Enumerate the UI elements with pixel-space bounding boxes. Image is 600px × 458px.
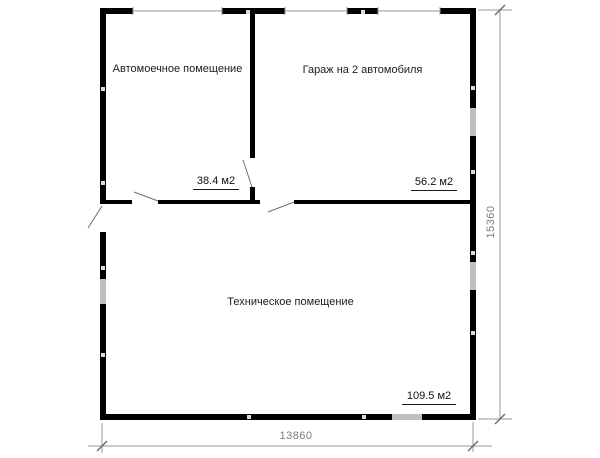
room-label-technical: Техническое помещение bbox=[218, 296, 363, 308]
room-label-carwash: Автомоечное помещение bbox=[105, 63, 250, 75]
area-label-garage: 56.2 м2 bbox=[411, 176, 457, 191]
room-label-garage: Гараж на 2 автомобиля bbox=[290, 64, 435, 76]
door-swing-garage-technical bbox=[268, 202, 294, 212]
door-swings bbox=[88, 160, 294, 228]
dimension-text-height: 15360 bbox=[485, 192, 497, 252]
floor-plan: Автомоечное помещение Гараж на 2 автомоб… bbox=[0, 0, 600, 458]
area-label-technical: 109.5 м2 bbox=[402, 390, 456, 405]
area-label-carwash: 38.4 м2 bbox=[193, 175, 239, 190]
door-swing-carwash-technical bbox=[134, 192, 158, 201]
dimension-text-width: 13860 bbox=[266, 430, 326, 442]
door-swing-carwash-garage bbox=[243, 160, 252, 187]
dimension-lines bbox=[88, 10, 512, 453]
door-swing-entrance-left bbox=[88, 206, 102, 228]
gate-opening-lines bbox=[133, 7, 440, 15]
